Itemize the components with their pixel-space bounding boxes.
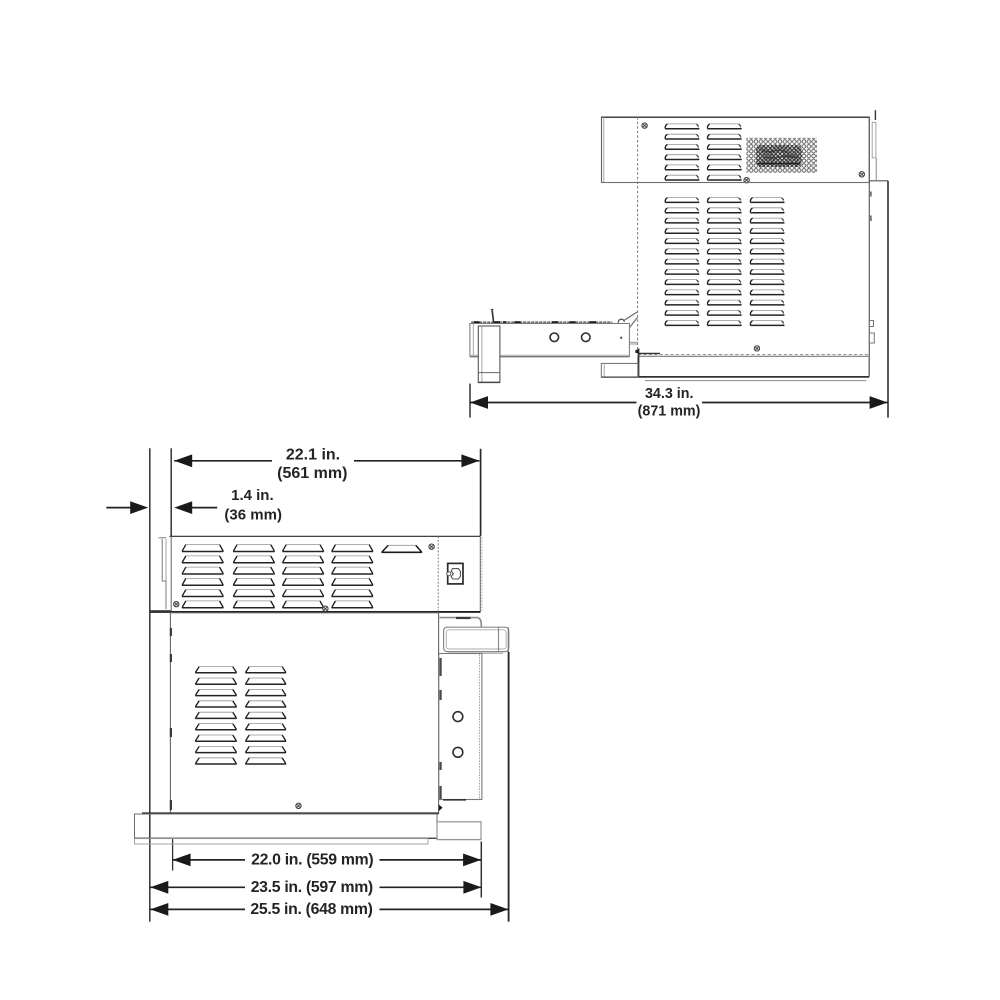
svg-text:(561 mm): (561 mm) [277,465,347,482]
svg-text:(871 mm): (871 mm) [638,404,701,420]
svg-text:22.1 in.: 22.1 in. [286,447,340,464]
svg-text:(36 mm): (36 mm) [224,506,282,523]
svg-text:23.5 in. (597 mm): 23.5 in. (597 mm) [251,879,373,896]
svg-text:22.0 in. (559 mm): 22.0 in. (559 mm) [251,851,373,868]
svg-text:1.4 in.: 1.4 in. [231,487,274,504]
svg-text:34.3 in.: 34.3 in. [645,386,693,402]
svg-text:25.5 in. (648 mm): 25.5 in. (648 mm) [250,901,372,918]
